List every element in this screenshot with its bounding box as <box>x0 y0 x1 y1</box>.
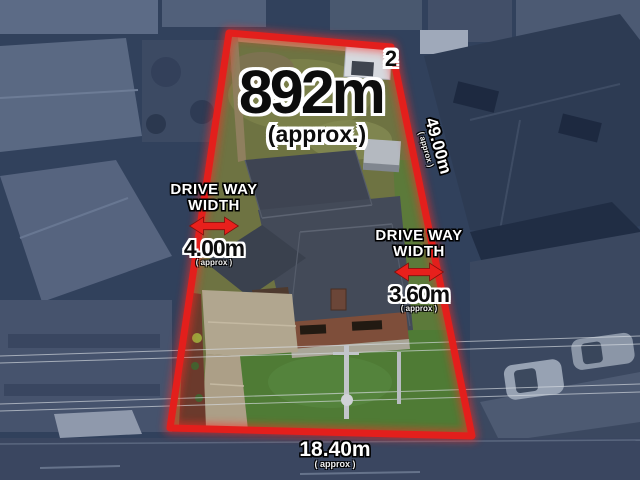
double-arrow-icon <box>393 261 445 283</box>
land-area-value: 892m2 <box>212 64 422 122</box>
frontage-length-label: 18.40m ( approx ) <box>281 439 389 469</box>
aerial-listing-image: 892m2 (approx.) DRIVE WAY WIDTH 4.00m ( … <box>0 0 640 480</box>
driveway-width-left-label: DRIVE WAY WIDTH 4.00m ( approx ) <box>150 182 278 267</box>
double-arrow-icon <box>188 215 240 237</box>
area-superscript: 2 <box>385 46 397 71</box>
driveway-width-right-label: DRIVE WAY WIDTH 3.60m ( approx ) <box>355 228 483 313</box>
land-area-label: 892m2 (approx.) <box>212 64 422 146</box>
